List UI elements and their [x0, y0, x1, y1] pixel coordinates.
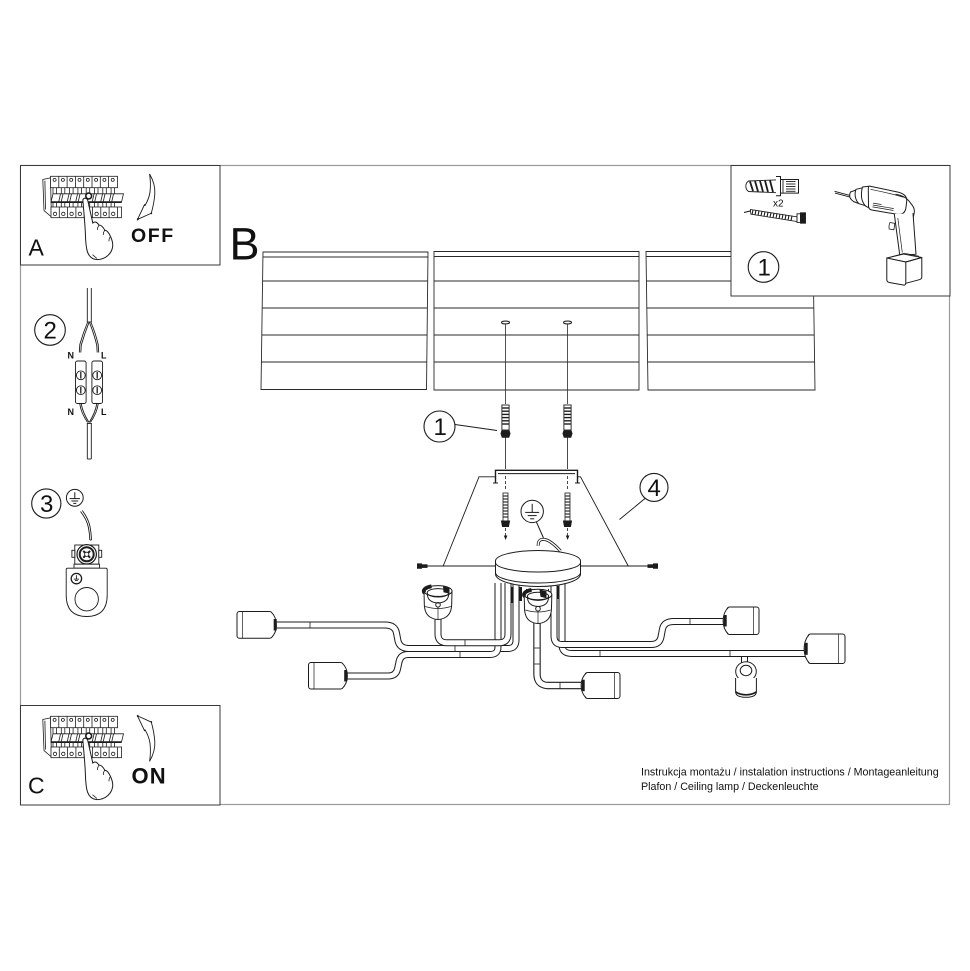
svg-text:B: B [230, 219, 260, 270]
svg-text:L: L [101, 351, 107, 361]
svg-text:Instrukcja montażu / instalati: Instrukcja montażu / instalation instruc… [641, 767, 939, 779]
svg-text:ON: ON [132, 764, 167, 789]
svg-text:N: N [68, 407, 75, 417]
svg-text:1: 1 [434, 414, 447, 441]
svg-text:Plafon / Ceiling lamp / Decken: Plafon / Ceiling lamp / Deckenleuchte [641, 781, 819, 793]
svg-text:1: 1 [758, 255, 771, 282]
svg-text:4: 4 [648, 475, 661, 502]
svg-text:OFF: OFF [131, 225, 175, 247]
svg-text:2: 2 [44, 318, 57, 345]
svg-text:x2: x2 [773, 199, 784, 210]
svg-text:N: N [68, 351, 75, 361]
svg-text:3: 3 [40, 491, 53, 518]
svg-text:C: C [28, 773, 45, 799]
svg-text:A: A [29, 235, 45, 261]
svg-text:L: L [101, 407, 107, 417]
